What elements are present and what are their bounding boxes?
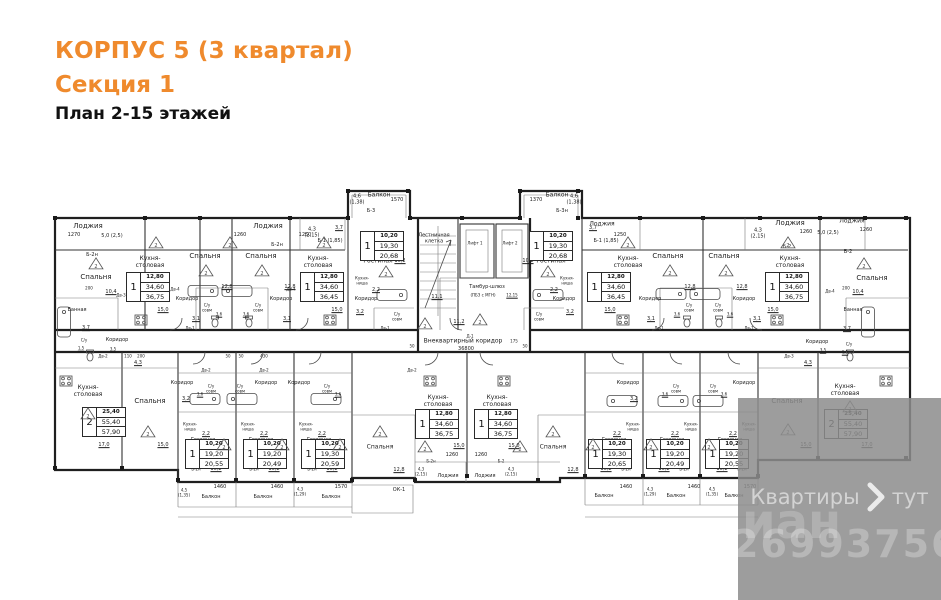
plan-text-label: Лоджия [253, 222, 282, 230]
plan-text-label: С/у совм [206, 384, 216, 393]
plan-text-label: Коридор [106, 338, 129, 344]
plan-text-label: Коридор [270, 297, 293, 303]
total-area: 36,75 [141, 292, 169, 301]
plan-text-label: Лоджия [474, 474, 495, 480]
room-area: 12,80 [780, 273, 808, 283]
plan-text-label: С/у совм [392, 312, 402, 321]
living-area: 19,20 [258, 450, 286, 460]
plan-text-label: 15,0 [453, 444, 464, 450]
plan-text-label: 11,2 [453, 320, 464, 326]
plan-text-label: 430 [260, 355, 268, 360]
plan-text-label: 200 [842, 287, 850, 292]
plan-text-label: Дв-2 [98, 355, 107, 360]
living-area: 19,20 [200, 450, 228, 460]
plan-text-label: 10,4 [105, 290, 116, 296]
rooms-count: 1 [127, 273, 141, 301]
plan-text-label: 1250 [299, 233, 312, 239]
plan-text-label: Дв-1 [654, 327, 663, 332]
plan-text-label: 4,3 (2,15) [750, 228, 765, 240]
triangle-marker: 2 [332, 436, 348, 449]
plan-text-label: С/у совм [708, 384, 718, 393]
plan-text-label: Кухня- ниша [684, 422, 698, 431]
plan-text-label: Лоджия [775, 219, 804, 227]
plan-text-label: Лоджия [437, 474, 458, 480]
plan-text-label: Коридор [733, 381, 756, 387]
plan-text-label: 3,6 [674, 313, 680, 318]
plan-text-label: (ПБЗ с МГН) [470, 294, 495, 299]
triangle-marker: 2 [780, 234, 796, 247]
rooms-count: 1 [530, 232, 544, 260]
plan-text-label: 3,7 [589, 226, 597, 232]
rooms-count: 1 [301, 273, 315, 301]
triangle-marker: 2 [545, 423, 561, 436]
room-area: 10,20 [603, 440, 631, 450]
plan-text-label: 4,5 (1,35) [178, 488, 190, 497]
plan-text-label: 1270 [68, 233, 81, 239]
plan-text-label: Дв-1 [380, 327, 389, 332]
living-area: 34,60 [430, 420, 458, 430]
svg-text:2: 2 [222, 445, 225, 451]
room-area: 25,40 [97, 408, 125, 418]
plan-text-label: С/у совм [235, 384, 245, 393]
plan-text-label: 3,6 [216, 313, 222, 318]
plan-text-label: 110 [124, 355, 132, 360]
plan-text-label: С/у совм [684, 303, 694, 312]
svg-text:2: 2 [649, 445, 652, 451]
apartment-stat-box: 112,8034,6036,75 [415, 409, 459, 439]
svg-text:2: 2 [668, 271, 671, 277]
total-area: 20,49 [258, 459, 286, 468]
room-area: 12,80 [489, 410, 517, 420]
plan-text-label: 15,0 [157, 308, 168, 314]
plan-text-label: Тамбур-шлюз [469, 285, 505, 291]
living-area: 19,30 [544, 242, 572, 252]
plan-text-label: Балкон [666, 494, 685, 500]
plan-text-label: Спальня [540, 445, 567, 452]
plan-text-label: Кухня- ниша [183, 422, 197, 431]
plan-text-label: Кухня- ниша [626, 422, 640, 431]
apartment-stat-box: 110,2019,3020,68 [360, 231, 404, 261]
svg-text:2: 2 [546, 272, 549, 278]
plan-text-label: Спальня [652, 252, 683, 260]
plan-text-label: Внеквартирный коридор [424, 339, 503, 346]
plan-text-label: 12,8 [221, 285, 232, 291]
plan-text-label: С/у [846, 343, 853, 348]
triangle-marker: 2 [472, 311, 488, 324]
plan-text-label: 12,8 [567, 468, 578, 474]
total-area: 36,75 [430, 429, 458, 438]
watermark-overlay: иан 26993756 Квартиры тут [738, 398, 941, 600]
plan-text-label: 3,2 [566, 310, 574, 316]
total-area: 36,45 [315, 292, 343, 301]
svg-text:2: 2 [786, 243, 789, 249]
total-area: 57,90 [97, 427, 125, 436]
plan-text-label: Спальня [189, 252, 220, 260]
plan-text-label: Коридор [171, 381, 194, 387]
plan-text-label: 4,3 (1,29) [644, 487, 656, 496]
room-area: 10,20 [661, 440, 689, 450]
plan-text-label: Кухня- ниша [560, 276, 574, 285]
plan-text-label: С/у совм [713, 303, 723, 312]
plan-text-label: 1,5 [78, 347, 84, 352]
plan-text-label: Ванная [843, 308, 862, 314]
plan-text-label: ОК-1 [393, 488, 405, 494]
plan-text-label: Коридор [639, 297, 662, 303]
svg-text:2: 2 [94, 264, 97, 270]
svg-text:2: 2 [724, 271, 727, 277]
plan-text-label: 1260 [446, 453, 459, 459]
plan-text-label: 12,8 [736, 285, 747, 291]
living-area: 19,30 [316, 450, 344, 460]
plan-text-label: Кухня- столовая [424, 395, 453, 409]
triangle-marker: 2 [540, 263, 556, 276]
triangle-marker: 2 [417, 315, 433, 328]
svg-text:2: 2 [423, 324, 426, 330]
triangle-marker: 2 [198, 262, 214, 275]
plan-text-label: Балкон [321, 495, 340, 501]
plan-text-label: 36800 [458, 347, 474, 353]
plan-text-label: Кухня- столовая [776, 256, 805, 270]
plan-text-label: 3,2 [182, 397, 190, 403]
plan-text-label: 4,3 [804, 361, 812, 367]
plan-text-label: 3,6 [335, 393, 341, 398]
triangle-marker: 2 [254, 262, 270, 275]
plan-text-label: 1260 [800, 230, 813, 236]
plan-text-label: Кухня- столовая [831, 384, 860, 398]
plan-text-label: Ванная [67, 308, 86, 314]
plan-text-label: Коридор [355, 297, 378, 303]
plan-text-label: 1460 [271, 485, 284, 491]
triangle-marker: 2 [662, 262, 678, 275]
svg-text:2: 2 [204, 271, 207, 277]
plan-text-label: 1460 [214, 485, 227, 491]
svg-text:2: 2 [280, 445, 283, 451]
plan-text-label: Кухня- столовая [483, 395, 512, 409]
total-area: 36,45 [602, 292, 630, 301]
chevron-right-icon [867, 482, 885, 512]
plan-text-label: Кухня- столовая [614, 256, 643, 270]
plan-text-label: 15,0 [604, 308, 615, 314]
plan-text-label: 50 [522, 345, 527, 350]
plan-text-label: 1460 [620, 485, 633, 491]
plan-text-label: 3,5 [820, 349, 826, 354]
plan-text-label: 4,6 (1,38) [566, 194, 581, 206]
plan-text-label: 175 [510, 340, 518, 345]
plan-text-label: 1370 [530, 198, 543, 204]
triangle-marker: 2 [512, 438, 528, 451]
triangle-marker: 2 [140, 423, 156, 436]
triangle-marker: 2 [80, 405, 96, 418]
apartment-stat-box: 112,8034,6036,75 [765, 272, 809, 302]
living-area: 19,30 [375, 242, 403, 252]
apartment-stat-box: 110,2019,3020,68 [529, 231, 573, 261]
plan-text-label: С/у совм [671, 384, 681, 393]
plan-text-label: 3,6 [727, 313, 733, 318]
plan-text-label: 5,0 (2,5) [101, 234, 122, 240]
rooms-count: 1 [244, 440, 258, 468]
watermark-brand-left: Квартиры [750, 485, 859, 509]
plan-text-label: Кухня- ниша [355, 276, 369, 285]
apartment-stat-box: 112,8034,6036,75 [474, 409, 518, 439]
total-area: 36,75 [780, 292, 808, 301]
plan-text-label: Б-2 [498, 460, 505, 465]
plan-text-label: Лифт 1 [467, 242, 482, 247]
triangle-marker: 2 [372, 423, 388, 436]
plan-text-label: Коридор [255, 381, 278, 387]
plan-text-label: 1,5 [842, 351, 848, 356]
plan-text-label: 15,0 [331, 308, 342, 314]
living-area: 34,60 [141, 283, 169, 293]
apartment-stat-box: 112,8034,6036,75 [126, 272, 170, 302]
plan-text-label: 4,6 (1,38) [349, 194, 364, 206]
plan-text-label: Лестничная клетка [418, 233, 449, 245]
plan-text-label: 3,6 [197, 393, 203, 398]
plan-text-label: 2,2 [550, 288, 558, 294]
plan-text-label: 4,3 (2,15) [415, 467, 427, 476]
rooms-count: 1 [186, 440, 200, 468]
plan-text-label: Балкон [594, 494, 613, 500]
triangle-marker: 2 [701, 436, 717, 449]
plan-text-label: 3,1 [753, 317, 761, 323]
plan-text-label: 50 [225, 355, 230, 360]
plan-text-label: Б-1 (1,85) [593, 239, 618, 245]
plan-text-label: Балкон [253, 495, 272, 501]
plan-text-label: 5,0 (2,5) [817, 231, 838, 237]
triangle-marker: 2 [222, 234, 238, 247]
plan-text-label: 3,5 [110, 348, 116, 353]
plan-text-label: Коридор [806, 340, 829, 346]
living-area: 34,60 [315, 283, 343, 293]
plan-text-label: Спальня [856, 274, 887, 282]
plan-text-label: Б-2 [844, 250, 852, 256]
triangle-marker: 2 [216, 436, 232, 449]
watermark-phone: 26993756 [738, 522, 941, 566]
plan-text-label: 200 [137, 355, 145, 360]
rooms-count: 1 [361, 232, 375, 260]
living-area: 34,60 [780, 283, 808, 293]
svg-text:2: 2 [378, 432, 381, 438]
plan-text-label: Спальня [367, 445, 394, 452]
plan-text-label: 4,3 [134, 361, 142, 367]
apartment-stat-box: 112,8034,6036,45 [300, 272, 344, 302]
plan-text-label: Спальня [245, 252, 276, 260]
plan-text-label: Коридор [553, 297, 576, 303]
watermark-brand: Квартиры тут [738, 482, 941, 512]
plan-text-label: 3,6 [662, 393, 668, 398]
plan-text-label: 3,7 [335, 226, 343, 232]
plan-text-label: Кухня- ниша [241, 422, 255, 431]
total-area: 36,75 [489, 429, 517, 438]
plan-text-label: Дв-4 [286, 288, 295, 293]
plan-text-label: 3,6 [243, 313, 249, 318]
svg-text:2: 2 [423, 447, 426, 453]
plan-text-label: Кухня- столовая [304, 256, 333, 270]
plan-text-label: Дв-1 [185, 327, 194, 332]
plan-text-label: Дв-2 [201, 369, 210, 374]
room-area: 10,20 [544, 232, 572, 242]
svg-text:2: 2 [154, 243, 157, 249]
svg-text:2: 2 [228, 243, 231, 249]
living-area: 34,60 [489, 420, 517, 430]
plan-text-label: Дв-3 [116, 294, 125, 299]
plan-text-label: Лоджия [73, 222, 102, 230]
svg-text:2: 2 [322, 243, 325, 249]
total-area: 20,59 [316, 459, 344, 468]
plan-text-label: Дв-2 [407, 369, 416, 374]
plan-text-label: Дв-4 [825, 290, 834, 295]
plan-text-label: 15,0 [767, 308, 778, 314]
total-area: 20,55 [200, 459, 228, 468]
plan-text-label: 200 [85, 287, 93, 292]
plan-text-label: Балкон [546, 193, 569, 200]
svg-text:2: 2 [146, 432, 149, 438]
plan-text-label: 4,5 (1,35) [706, 487, 718, 496]
plan-text-label: Коридор [288, 381, 311, 387]
triangle-marker: 2 [643, 436, 659, 449]
rooms-count: 1 [588, 273, 602, 301]
living-area: 19,20 [661, 450, 689, 460]
svg-text:2: 2 [260, 271, 263, 277]
plan-text-label: Балкон [201, 495, 220, 501]
room-area: 10,20 [375, 232, 403, 242]
triangle-marker: 2 [88, 255, 104, 268]
room-area: 12,80 [430, 410, 458, 420]
rooms-count: 1 [302, 440, 316, 468]
plan-text-label: Спальня [134, 397, 165, 405]
living-area: 19,30 [603, 450, 631, 460]
svg-text:2: 2 [384, 272, 387, 278]
plan-text-label: 1260 [475, 453, 488, 459]
plan-text-label: Дв-3 [784, 355, 793, 360]
plan-text-label: 17,0 [98, 443, 109, 449]
room-area: 12,80 [602, 273, 630, 283]
plan-text-label: 3,6 [721, 393, 727, 398]
svg-text:2: 2 [862, 264, 865, 270]
plan-text-label: 12,8 [684, 285, 695, 291]
plan-text-label: 1460 [688, 485, 701, 491]
plan-text-label: Б-3н [556, 209, 568, 215]
plan-text-label: Дв-4 [170, 288, 179, 293]
triangle-marker: 2 [620, 234, 636, 247]
plan-text-label: 3,1 [647, 317, 655, 323]
rooms-count: 1 [416, 410, 430, 438]
plan-text-label: С/у совм [202, 303, 212, 312]
floor-plan-page: КОРПУС 5 (3 квартал) Секция 1 План 2-15 … [0, 0, 941, 600]
plan-text-label: Дв-1 [744, 327, 753, 332]
triangle-marker: 2 [316, 234, 332, 247]
total-area: 20,68 [375, 251, 403, 260]
plan-text-label: 3,2 [356, 310, 364, 316]
triangle-marker: 2 [274, 436, 290, 449]
plan-text-label: 3,2 [630, 397, 638, 403]
plan-text-label: Лифт 2 [502, 242, 517, 247]
svg-text:2: 2 [86, 414, 89, 420]
plan-text-label: 4,3 (2,15) [505, 467, 517, 476]
room-area: 12,80 [315, 273, 343, 283]
plan-text-label: С/у совм [253, 303, 263, 312]
triangle-marker: 2 [718, 262, 734, 275]
watermark-brand-right: тут [892, 485, 929, 509]
living-area: 55,40 [97, 418, 125, 428]
plan-text-label: 3,1 [283, 317, 291, 323]
total-area: 20,65 [603, 459, 631, 468]
plan-text-label: Коридор [617, 381, 640, 387]
plan-text-label: 1570 [335, 485, 348, 491]
svg-text:2: 2 [478, 320, 481, 326]
plan-text-label: Б-2н [271, 243, 283, 249]
svg-text:2: 2 [591, 445, 594, 451]
plan-text-label: 15,0 [157, 443, 168, 449]
plan-text-label: 1570 [391, 198, 404, 204]
plan-text-label: Кухня- столовая [136, 256, 165, 270]
plan-text-label: Спальня [80, 273, 111, 281]
plan-text-label: С/у совм [322, 384, 332, 393]
plan-text-label: Балкон [368, 193, 391, 200]
plan-text-label: 3,1 [192, 317, 200, 323]
triangle-marker: 2 [417, 438, 433, 451]
plan-text-label: Спальня [708, 252, 739, 260]
plan-text-label: Коридор [176, 297, 199, 303]
plan-text-label: Кухня- ниша [299, 422, 313, 431]
plan-text-label: Лоджия [839, 219, 864, 226]
plan-text-label: Коридор [733, 297, 756, 303]
plan-text-label: 50 [238, 355, 243, 360]
room-area: 12,80 [141, 273, 169, 283]
plan-text-label: 4,3 (1,29) [294, 487, 306, 496]
plan-text-label: 2,2 [372, 288, 380, 294]
plan-text-label: 50 [409, 345, 414, 350]
svg-text:2: 2 [626, 243, 629, 249]
plan-text-label: Кухня- столовая [74, 385, 103, 399]
plan-text-label: 11,1 [431, 295, 442, 301]
rooms-count: 1 [475, 410, 489, 438]
plan-text-label: 12,15 [506, 294, 517, 299]
triangle-marker: 2 [585, 436, 601, 449]
plan-text-label: 10,4 [852, 290, 863, 296]
svg-text:2: 2 [551, 432, 554, 438]
plan-text-label: 3,7 [82, 326, 90, 332]
plan-text-label: С/у [81, 339, 88, 344]
plan-text-label: Б-2н [426, 460, 435, 465]
plan-text-label: Дв-2 [259, 369, 268, 374]
triangle-marker: 2 [856, 255, 872, 268]
living-area: 34,60 [602, 283, 630, 293]
plan-text-label: 3,7 [843, 327, 851, 333]
total-area: 20,68 [544, 251, 572, 260]
rooms-count: 1 [766, 273, 780, 301]
svg-text:2: 2 [338, 445, 341, 451]
total-area: 20,49 [661, 459, 689, 468]
svg-text:2: 2 [707, 445, 710, 451]
triangle-marker: 2 [378, 263, 394, 276]
plan-text-label: 1260 [860, 228, 873, 234]
plan-text-label: 12,8 [393, 468, 404, 474]
plan-text-label: С/у совм [534, 312, 544, 321]
svg-text:2: 2 [518, 447, 521, 453]
plan-text-label: Б-3 [367, 209, 375, 215]
apartment-stat-box: 112,8034,6036,45 [587, 272, 631, 302]
triangle-marker: 2 [148, 234, 164, 247]
